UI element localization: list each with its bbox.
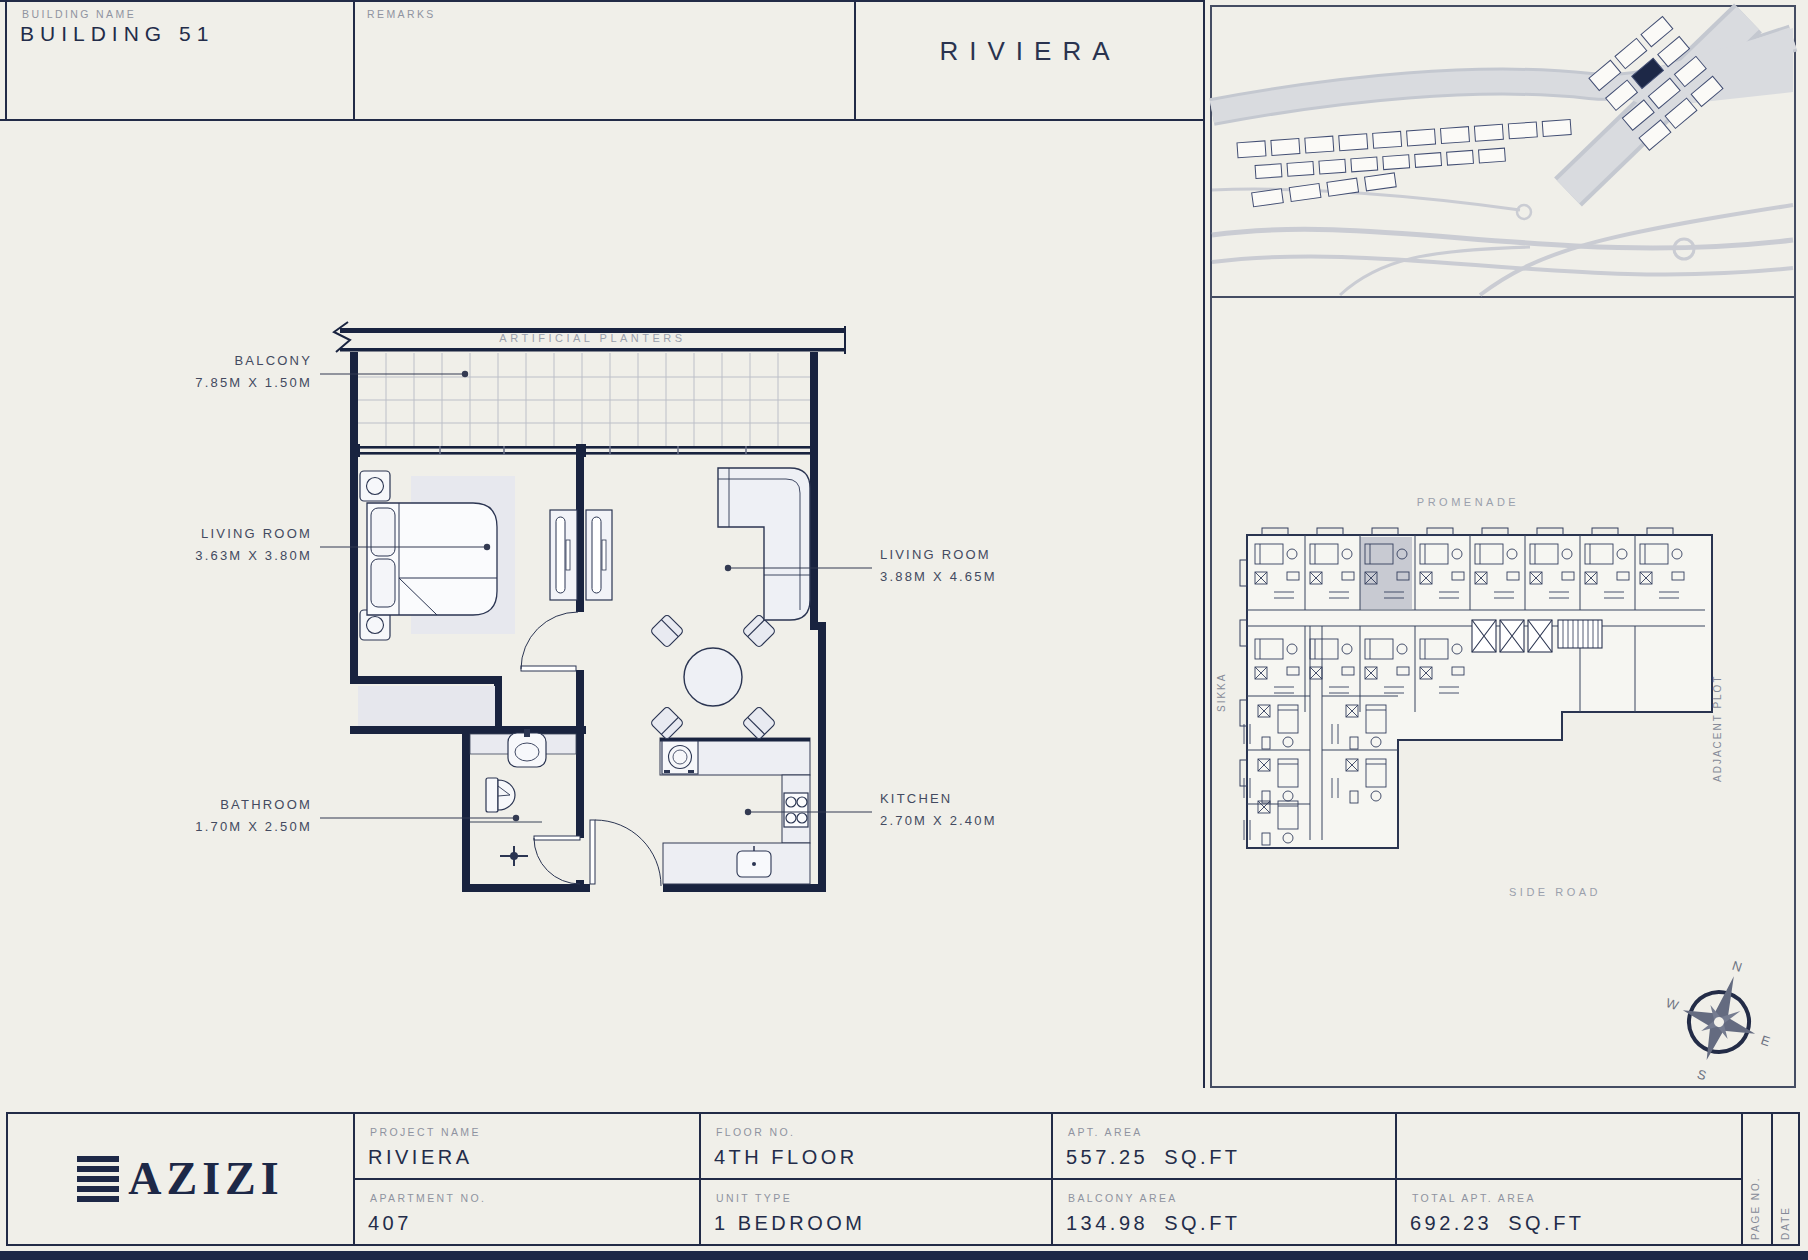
unit-type-value: 1 BEDROOM — [714, 1212, 866, 1235]
building-name-label: BUILDING NAME — [22, 8, 136, 20]
nightstand — [360, 471, 390, 501]
key-plan — [1240, 528, 1712, 848]
sofa — [718, 468, 810, 620]
sheet-graphics: N E S W — [0, 0, 1808, 1260]
apartment-no-value: 407 — [368, 1212, 412, 1235]
azizi-logo: AZIZI — [8, 1114, 353, 1244]
project-name-value: RIVIERA — [368, 1146, 473, 1169]
apt-area-unit: SQ.FT — [1164, 1146, 1240, 1168]
remarks-label: REMARKS — [367, 8, 436, 20]
apartment-no-label: APARTMENT NO. — [370, 1192, 486, 1204]
pillow — [371, 559, 395, 607]
side-road-label: SIDE ROAD — [1430, 886, 1680, 898]
project-title: RIVIERA — [855, 36, 1205, 67]
artificial-planters-label: ARTIFICIAL PLANTERS — [340, 332, 845, 344]
site-map — [1212, 17, 1793, 295]
bathroom-dims: 1.70M X 2.50M — [140, 816, 312, 838]
balcony-area-value: 134.98SQ.FT — [1066, 1212, 1241, 1235]
apartment-plan — [320, 322, 872, 892]
building-name-value: BUILDING 51 — [20, 22, 214, 46]
floor-plan-sheet: N E S W — [0, 0, 1808, 1260]
living-room-dims: 3.88M X 4.65M — [880, 566, 997, 588]
bathroom-sink — [508, 733, 546, 767]
page-no-label: PAGE NO. — [1750, 1176, 1761, 1240]
total-area-number: 692.23 — [1410, 1212, 1492, 1234]
total-area-unit: SQ.FT — [1508, 1212, 1584, 1234]
project-name-label: PROJECT NAME — [370, 1126, 481, 1138]
total-area-value: 692.23SQ.FT — [1410, 1212, 1585, 1235]
bathroom-door-arc — [534, 838, 580, 884]
living-room-name: LIVING ROOM — [880, 544, 997, 566]
balcony-dims: 7.85M X 1.50M — [140, 372, 312, 394]
apt-area-number: 557.25 — [1066, 1146, 1148, 1168]
apt-area-label: APT. AREA — [1068, 1126, 1143, 1138]
compass-s: S — [1695, 1066, 1708, 1083]
balcony-name: BALCONY — [140, 350, 312, 372]
kitchen-name: KITCHEN — [880, 788, 997, 810]
kitchen-dims: 2.70M X 2.40M — [880, 810, 997, 832]
balcony-area-number: 134.98 — [1066, 1212, 1148, 1234]
bathroom-door-leaf — [534, 836, 580, 840]
compass-e: E — [1759, 1032, 1772, 1049]
entry-door-leaf — [590, 820, 595, 884]
floor-no-value: 4TH FLOOR — [714, 1146, 858, 1169]
bathroom-name: BATHROOM — [140, 794, 312, 816]
total-area-label: TOTAL APT. AREA — [1412, 1192, 1536, 1204]
promenade-label: PROMENADE — [1333, 496, 1603, 508]
shower-symbol — [500, 846, 528, 866]
living-room-label: LIVING ROOM 3.88M X 4.65M — [880, 544, 997, 588]
date-label: DATE — [1780, 1206, 1791, 1240]
unit-type-label: UNIT TYPE — [716, 1192, 792, 1204]
bedroom-name: LIVING ROOM — [140, 523, 312, 545]
balcony-area-label: BALCONY AREA — [1068, 1192, 1178, 1204]
pillow — [371, 508, 395, 556]
bedroom-label: LIVING ROOM 3.63M X 3.80M — [140, 523, 312, 567]
footer-bar — [0, 1251, 1808, 1260]
closet-alcove — [358, 686, 495, 726]
balcony-area-unit: SQ.FT — [1164, 1212, 1240, 1234]
azizi-wordmark: AZIZI — [128, 1156, 283, 1202]
apt-area-value: 557.25SQ.FT — [1066, 1146, 1241, 1169]
balcony-label: BALCONY 7.85M X 1.50M — [140, 350, 312, 394]
compass-n: N — [1730, 958, 1744, 975]
bedroom-dims: 3.63M X 3.80M — [140, 545, 312, 567]
dining-table — [684, 648, 742, 706]
adjacent-plot-label: ADJACENT PLOT — [1712, 675, 1723, 783]
compass-rose: N E S W — [1646, 942, 1791, 1099]
kitchen-label: KITCHEN 2.70M X 2.40M — [880, 788, 997, 832]
floor-no-label: FLOOR NO. — [716, 1126, 795, 1138]
bathroom-label: BATHROOM 1.70M X 2.50M — [140, 794, 312, 838]
entry-door-arc — [595, 820, 661, 886]
azizi-bars-icon — [77, 1156, 119, 1202]
compass-w: W — [1664, 995, 1681, 1013]
bedroom-door-arc — [521, 612, 578, 669]
dining-set — [650, 614, 776, 740]
bedroom-door-leaf — [521, 666, 576, 671]
sikka-label: SIKKA — [1216, 673, 1227, 712]
toilet-tank — [486, 778, 498, 812]
